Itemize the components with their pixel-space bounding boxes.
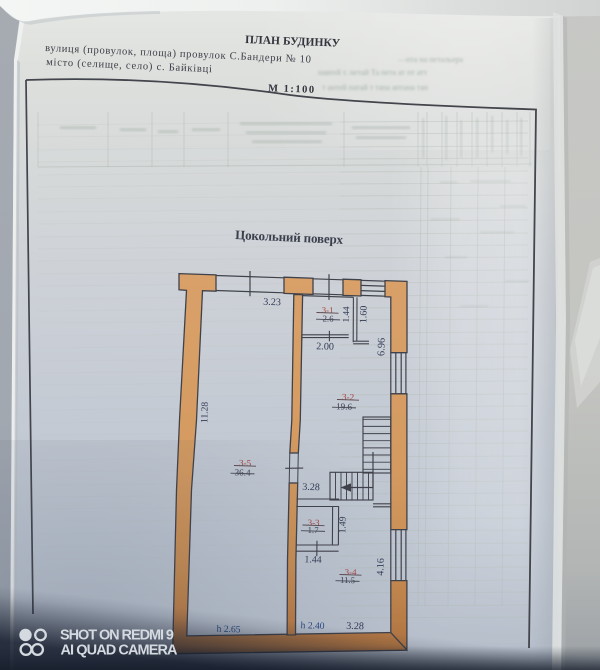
svg-text:2.00: 2.00	[316, 341, 334, 352]
svg-text:—пта на петальера: —пта на петальера	[397, 55, 463, 64]
svg-text:11.28: 11.28	[199, 401, 211, 423]
svg-text:SHOT ON REDMI 9: SHOT ON REDMI 9	[60, 628, 174, 644]
svg-text:6.96: 6.96	[376, 338, 388, 356]
svg-text:19.6: 19.6	[336, 401, 353, 411]
svg-text:навтей т. петай Та пета ат п: навтей т. петай Та пета ат пт атт	[318, 68, 428, 77]
svg-text:AI QUAD CAMERA: AI QUAD CAMERA	[61, 643, 179, 659]
svg-text:1.60: 1.60	[358, 306, 369, 324]
svg-text:3.23: 3.23	[263, 297, 281, 308]
svg-text:1.44: 1.44	[341, 306, 351, 323]
svg-text:т антей патай т тапа аптана: т антей патай т тапа аптана тап	[322, 83, 429, 92]
svg-text:2.6: 2.6	[322, 313, 334, 323]
